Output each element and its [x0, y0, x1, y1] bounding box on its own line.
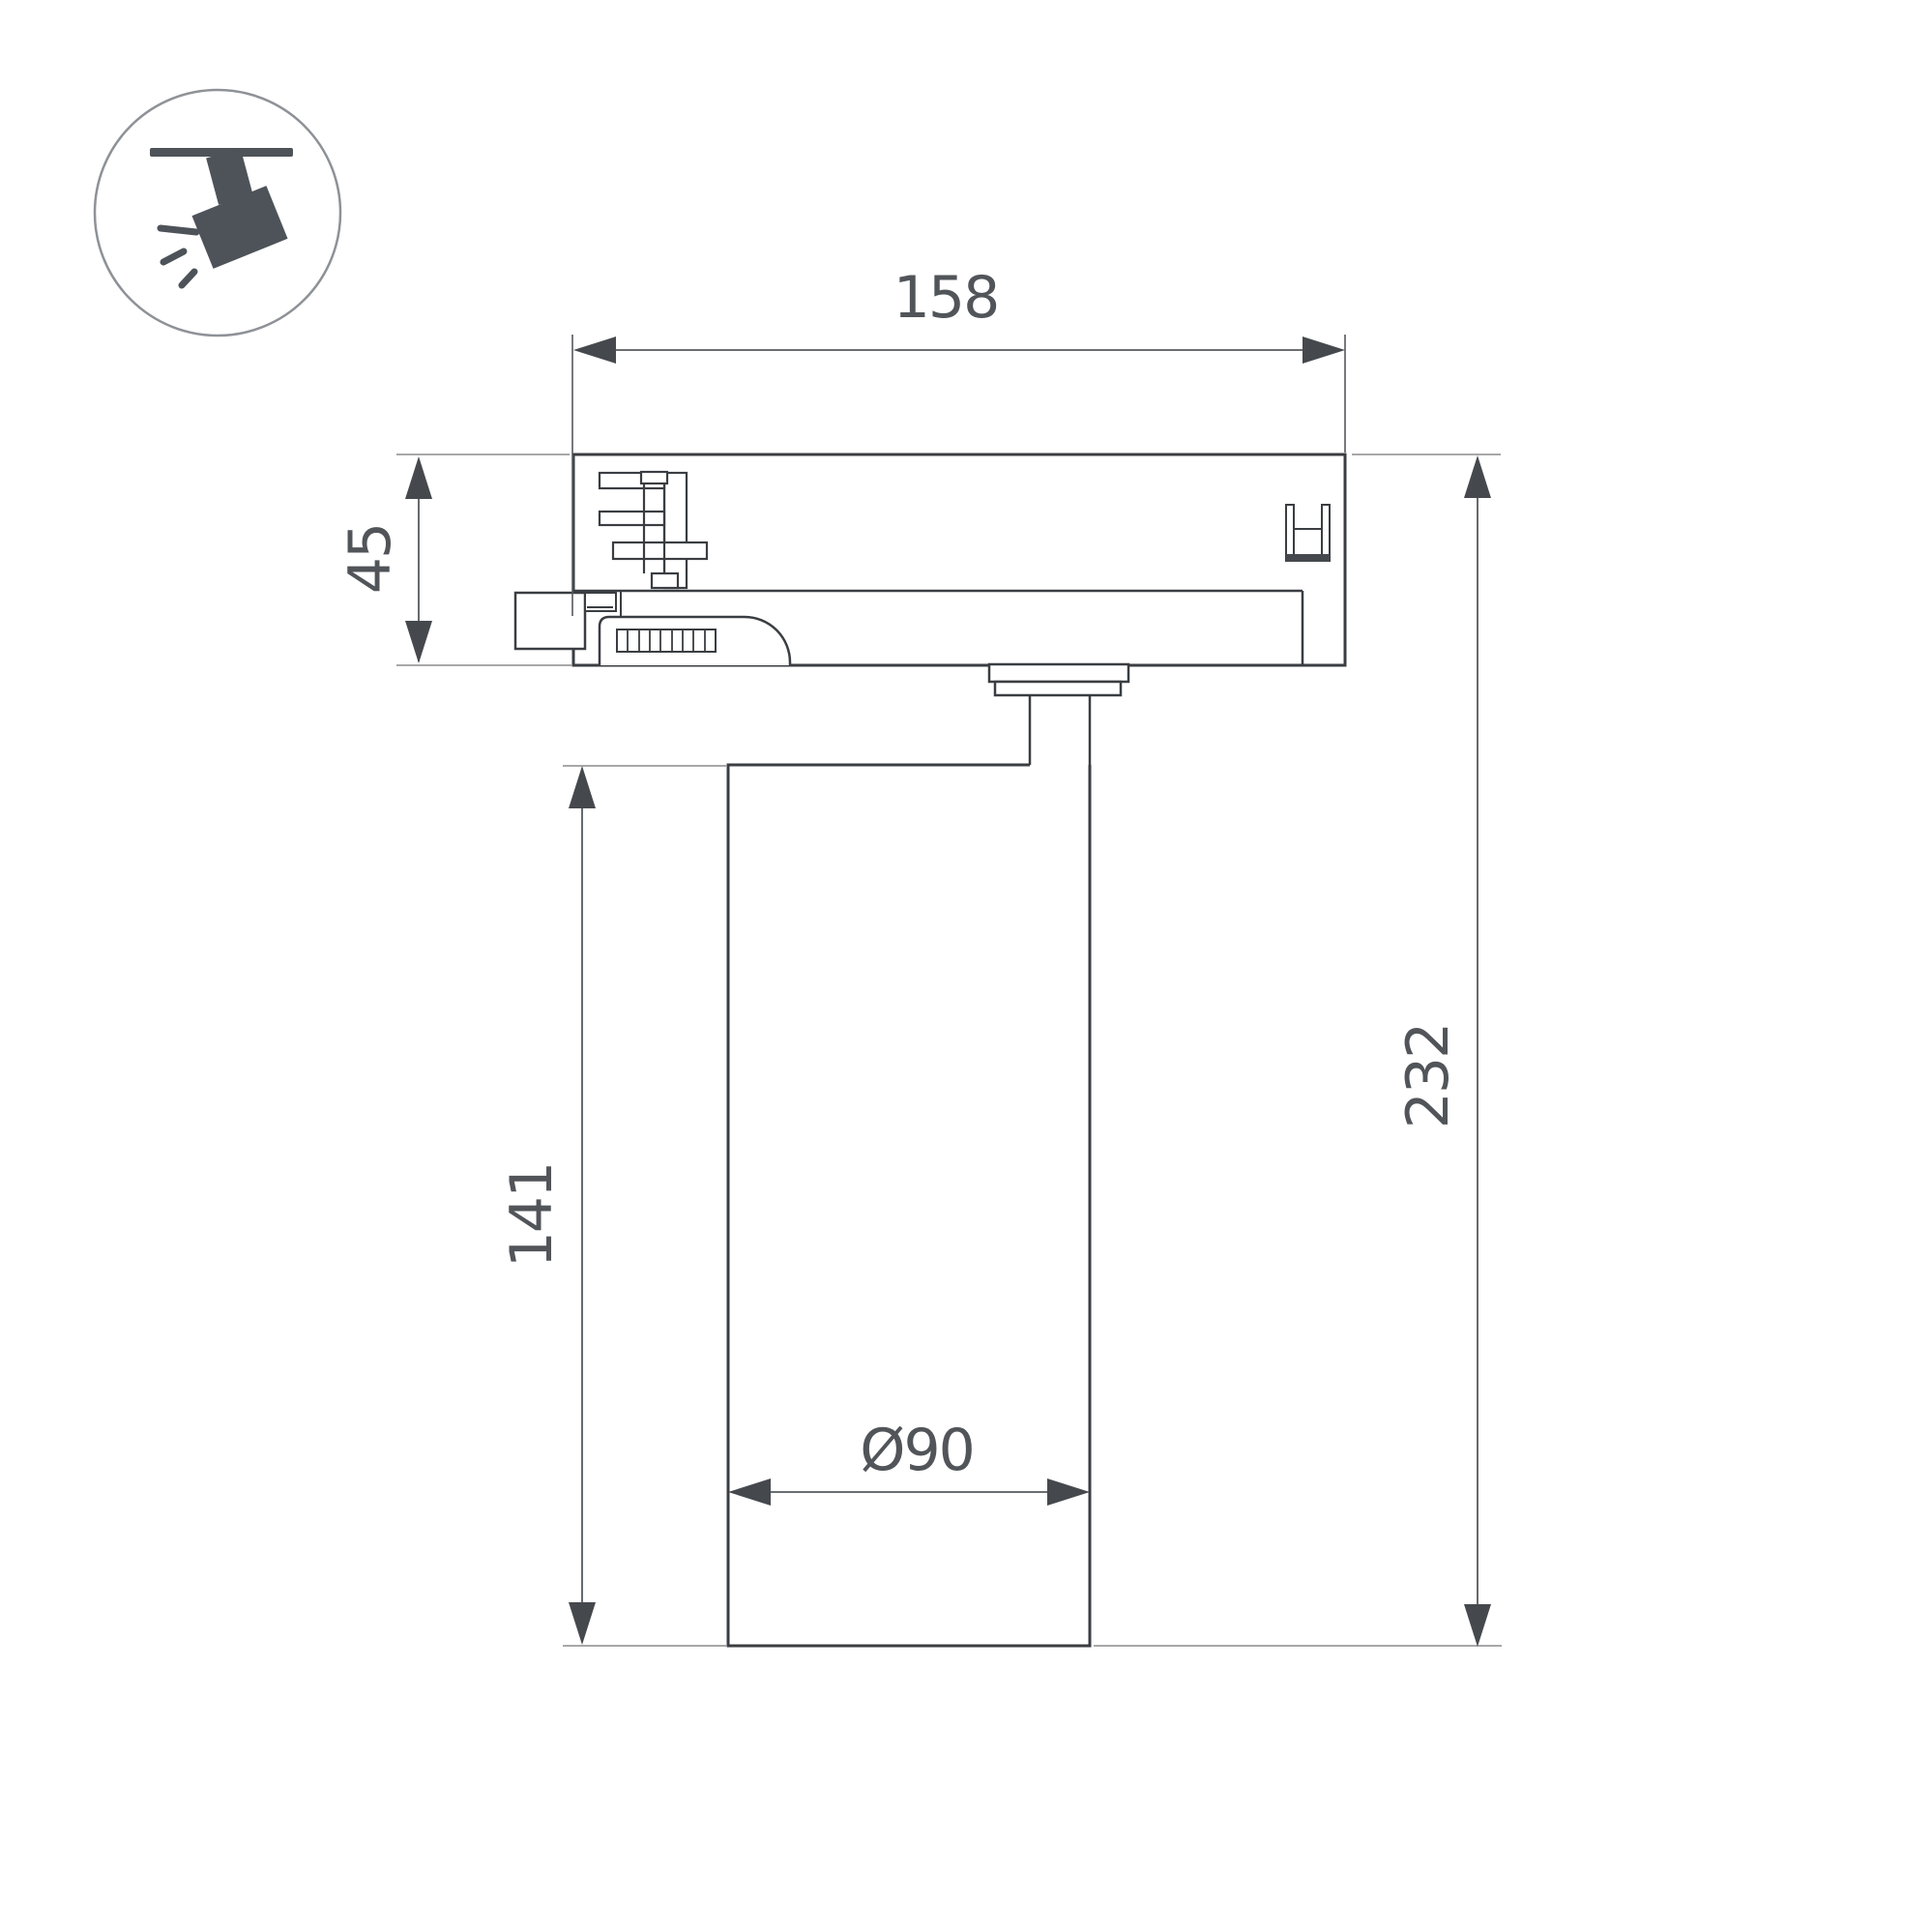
dim-body-height-arrow-bottom — [569, 1602, 596, 1645]
pin-prong-middle — [600, 512, 664, 525]
dim-adapter-height — [405, 456, 432, 663]
dim-adapter-height-arrow-bottom — [405, 621, 432, 663]
clip-left-wall — [1286, 505, 1294, 561]
latch-jaw — [585, 593, 616, 611]
dim-label-total-height: 232 — [1399, 1024, 1457, 1129]
pin-screw-foot — [652, 573, 678, 588]
dim-label-width: 158 — [893, 269, 999, 327]
track-spotlight-icon — [95, 90, 340, 336]
dim-adapter-height-arrow-top — [405, 456, 432, 499]
latch-block — [515, 593, 585, 649]
pin-screw-cap — [641, 472, 667, 483]
lamp-body — [728, 765, 1090, 1646]
mount-flange — [989, 664, 1128, 765]
dim-label-diameter: Ø90 — [860, 1421, 974, 1479]
ribbed-dial — [617, 629, 716, 652]
clip-bottom-bar — [1286, 554, 1330, 562]
dim-width-arrow-left — [573, 337, 616, 364]
flange-step-2 — [995, 682, 1121, 695]
dim-total-height-arrow-bottom — [1464, 1604, 1491, 1647]
pivot-stem — [1030, 695, 1090, 765]
dim-width — [573, 337, 1345, 364]
dimension-drawing-page: 158 45 141 232 Ø90 — [0, 0, 1932, 1932]
dim-label-body-height: 141 — [503, 1163, 561, 1269]
dim-width-arrow-right — [1303, 337, 1345, 364]
clip-right-wall — [1322, 505, 1330, 561]
dim-label-adapter-height: 45 — [341, 524, 399, 594]
dim-body-height — [569, 766, 596, 1645]
dim-total-height — [1464, 455, 1491, 1647]
track-adapter — [515, 454, 1345, 665]
pin-spine — [664, 473, 687, 588]
dim-total-height-arrow-top — [1464, 455, 1491, 498]
pin-prong-bottom — [613, 542, 707, 559]
flange-step-1 — [989, 664, 1128, 682]
dim-body-height-arrow-top — [569, 766, 596, 808]
adjuster-body — [600, 617, 790, 665]
